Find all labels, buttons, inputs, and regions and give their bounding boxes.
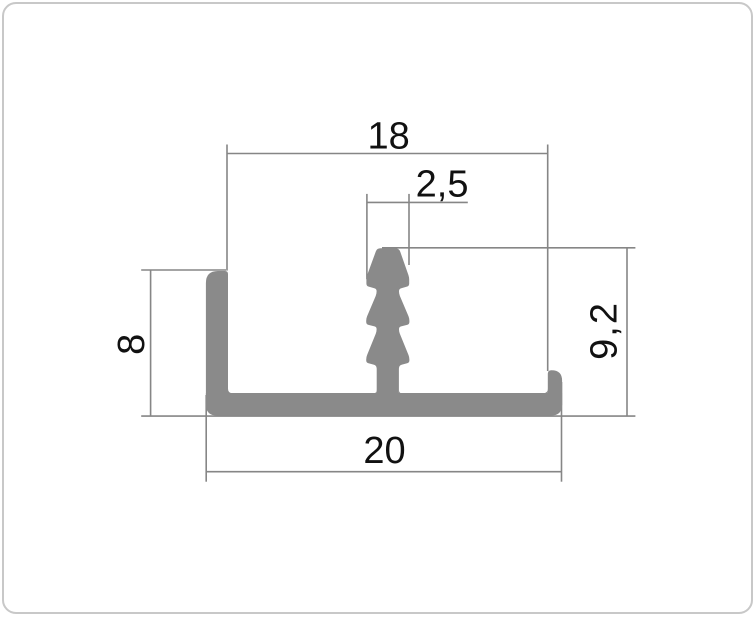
svg-text:8: 8 <box>111 334 153 355</box>
svg-text:18: 18 <box>368 116 410 158</box>
svg-text:20: 20 <box>363 430 405 472</box>
svg-text:2,5: 2,5 <box>416 164 469 206</box>
svg-text:9,2: 9,2 <box>584 301 626 360</box>
